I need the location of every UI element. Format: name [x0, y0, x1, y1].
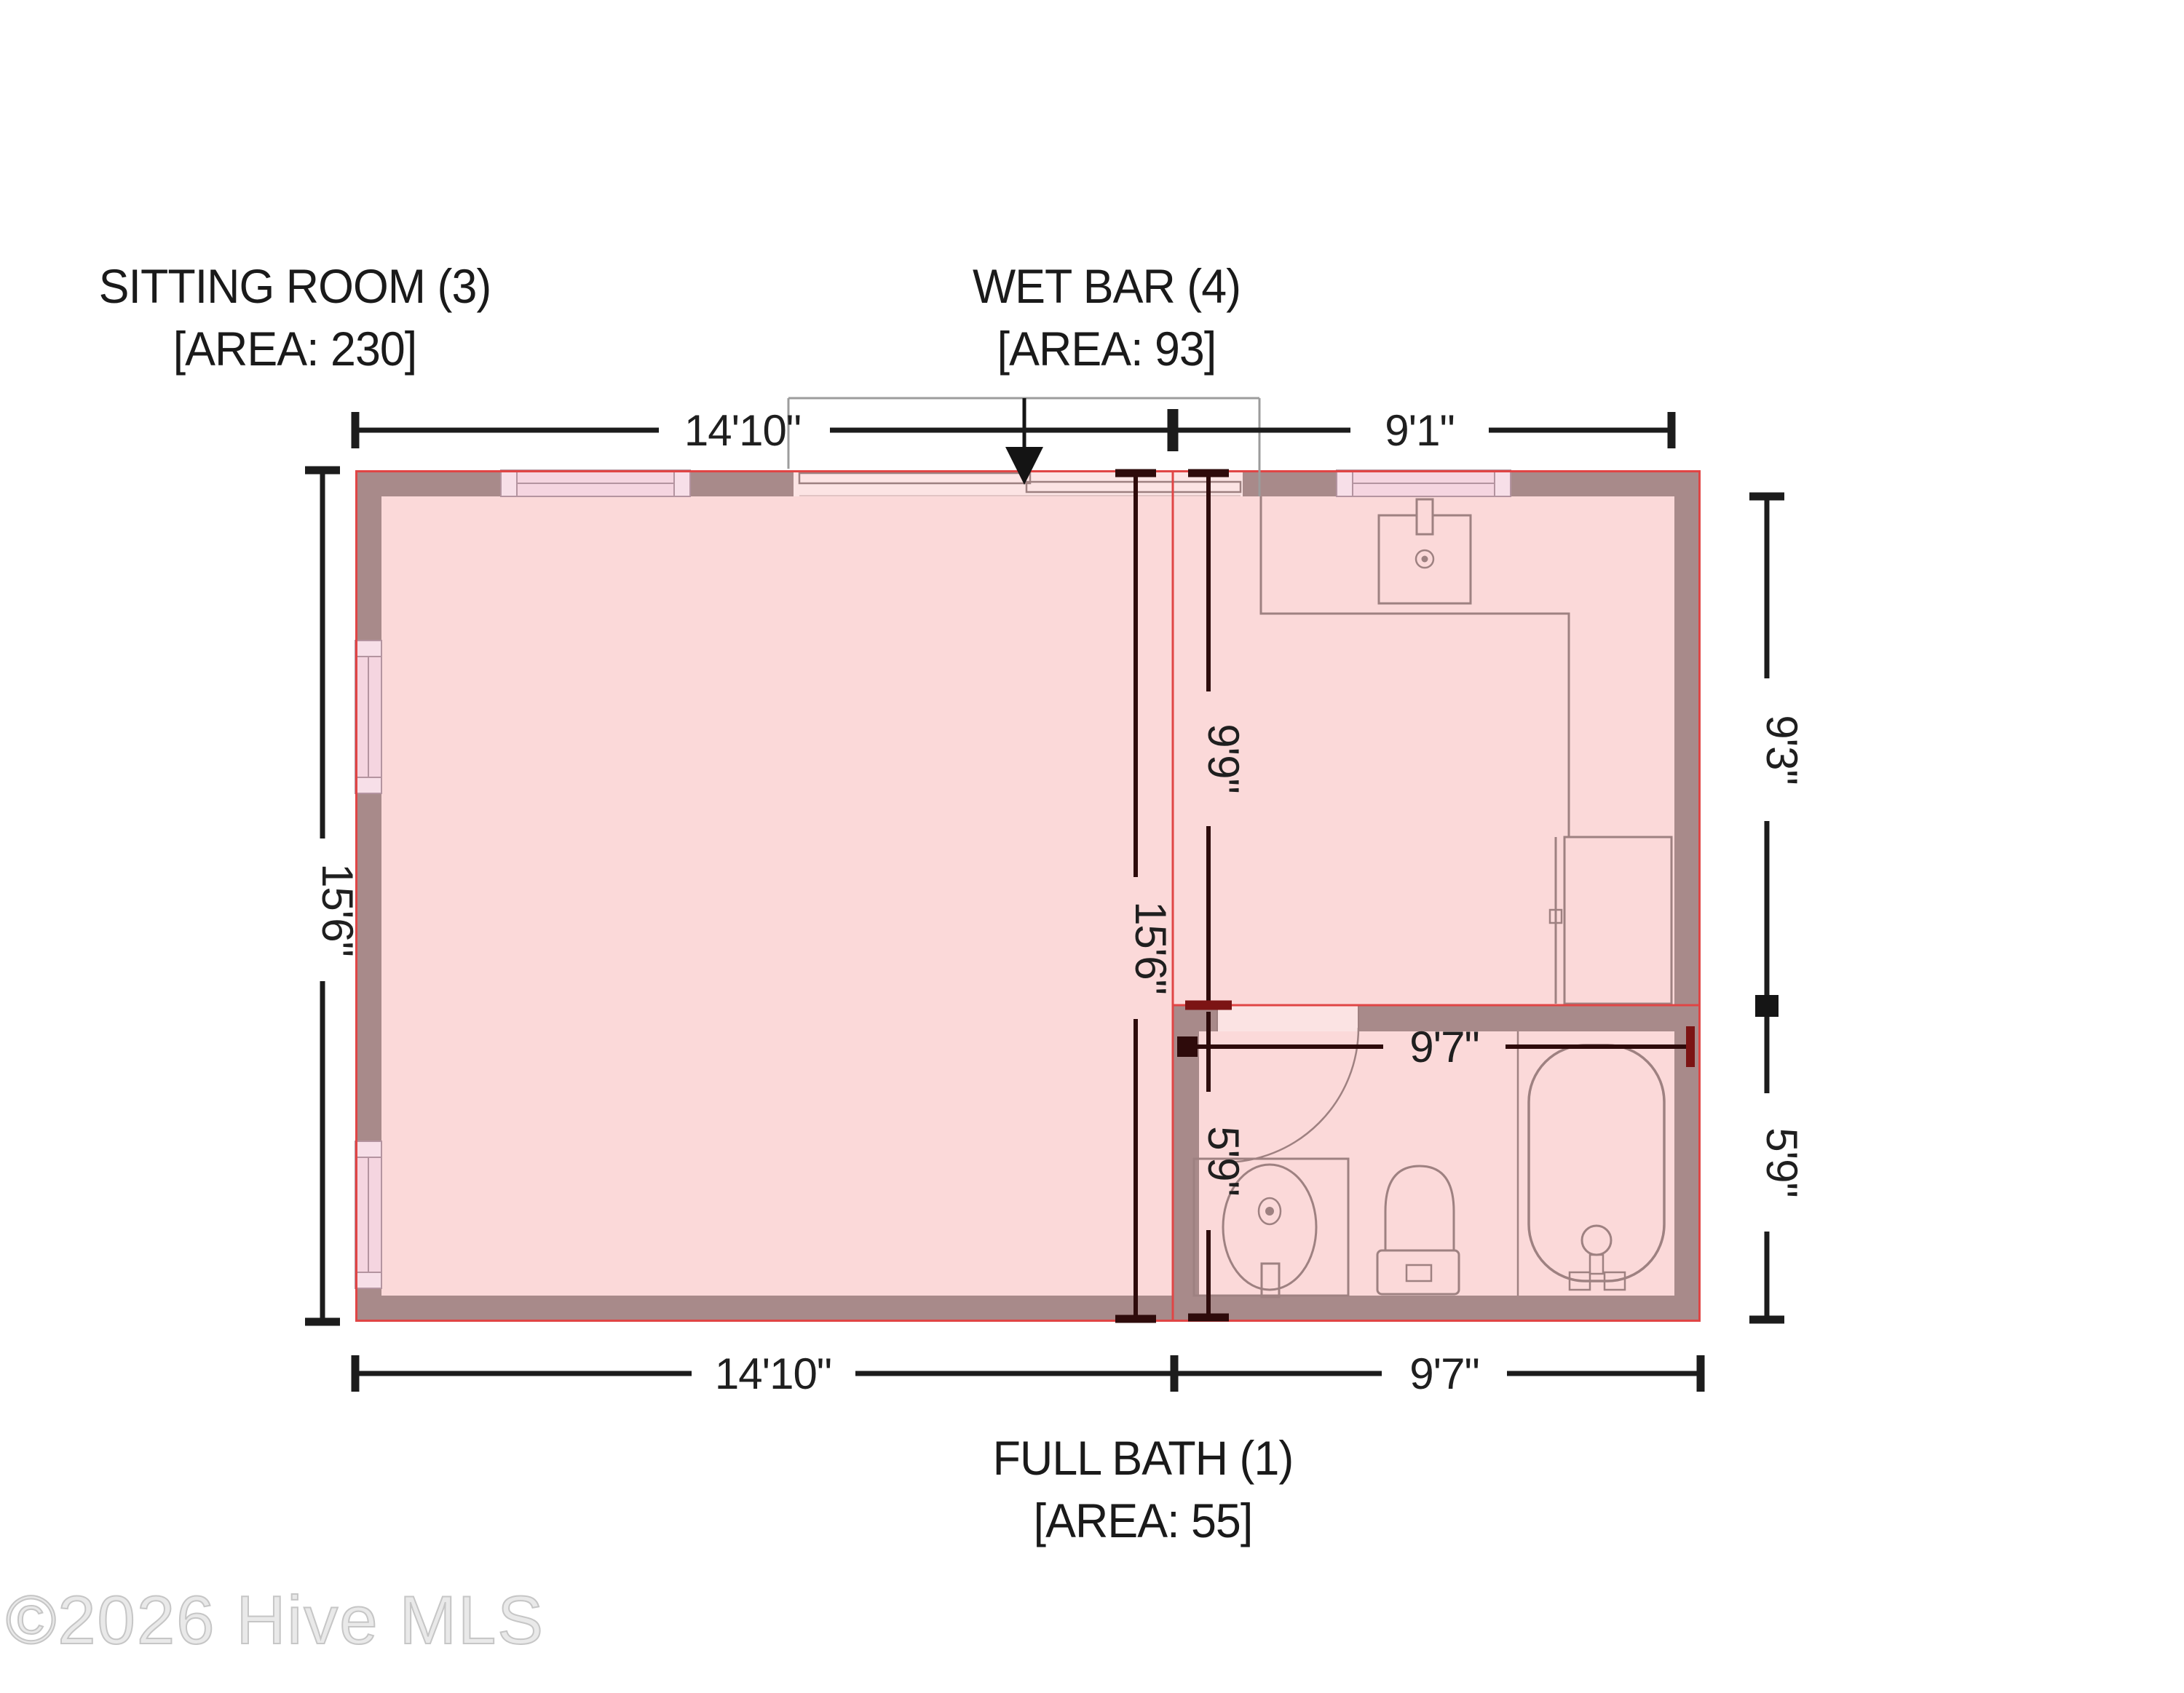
- dim-label-left-height: 15'6": [313, 863, 362, 956]
- room-area-fullbath: [AREA: 55]: [866, 1489, 1420, 1552]
- window-icon-left-lower: [355, 1141, 381, 1288]
- room-name-sitting: SITTING ROOM (3): [18, 255, 571, 317]
- dim-label-right-bath: 5'9": [1757, 1127, 1806, 1197]
- wall-bath-top-2: [1358, 1005, 1674, 1031]
- entry-opening: [794, 470, 1243, 496]
- wall-bottom: [355, 1296, 1701, 1322]
- window-icon-top-sitting: [501, 470, 690, 496]
- floor-plan-page: 14'10" 9'1" 14'10" 9'7" 15'6" 15'6" 9'9"…: [0, 0, 2184, 1693]
- room-name-fullbath: FULL BATH (1): [866, 1427, 1420, 1489]
- dim-label-bottom-bath: 9'7": [1409, 1349, 1479, 1398]
- wall-top-1: [355, 470, 501, 496]
- room-area-wetbar: [AREA: 93]: [830, 317, 1383, 380]
- window-icon-top-wetbar: [1337, 470, 1511, 496]
- wall-top-3: [1243, 470, 1337, 496]
- dim-label-bath-width: 9'7": [1409, 1023, 1479, 1071]
- wall-top-4: [1511, 470, 1701, 496]
- floor-fill: [356, 471, 1700, 1321]
- room-area-sitting: [AREA: 230]: [18, 317, 571, 380]
- wall-top-2: [690, 470, 794, 496]
- dim-top: [355, 409, 1671, 451]
- wall-right: [1674, 470, 1701, 1296]
- dim-bottom: [355, 1355, 1701, 1392]
- room-label-wetbar: WET BAR (4) [AREA: 93]: [830, 255, 1383, 380]
- dim-label-interior-height: 15'6": [1126, 901, 1175, 994]
- room-label-sitting: SITTING ROOM (3) [AREA: 230]: [18, 255, 571, 380]
- dim-label-top-sitting: 14'10": [684, 406, 801, 455]
- window-icon-left-upper: [355, 641, 381, 793]
- room-name-wetbar: WET BAR (4): [830, 255, 1383, 317]
- bath-doorway-fill: [1217, 1005, 1358, 1031]
- dim-label-wetbar-height: 9'9": [1199, 723, 1248, 793]
- dim-label-bath-height: 5'9": [1199, 1126, 1248, 1196]
- bath-doorway: [1217, 1005, 1358, 1031]
- dim-label-bottom-sitting: 14'10": [715, 1349, 831, 1398]
- dim-label-right-wetbar: 9'3": [1757, 715, 1806, 785]
- dim-label-top-wetbar: 9'1": [1385, 406, 1455, 455]
- watermark: ©2026 Hive MLS: [6, 1581, 545, 1660]
- floor-areas: [356, 471, 1700, 1321]
- room-label-fullbath: FULL BATH (1) [AREA: 55]: [866, 1427, 1420, 1552]
- wall-left-1: [355, 496, 381, 641]
- wall-left-2: [355, 793, 381, 1141]
